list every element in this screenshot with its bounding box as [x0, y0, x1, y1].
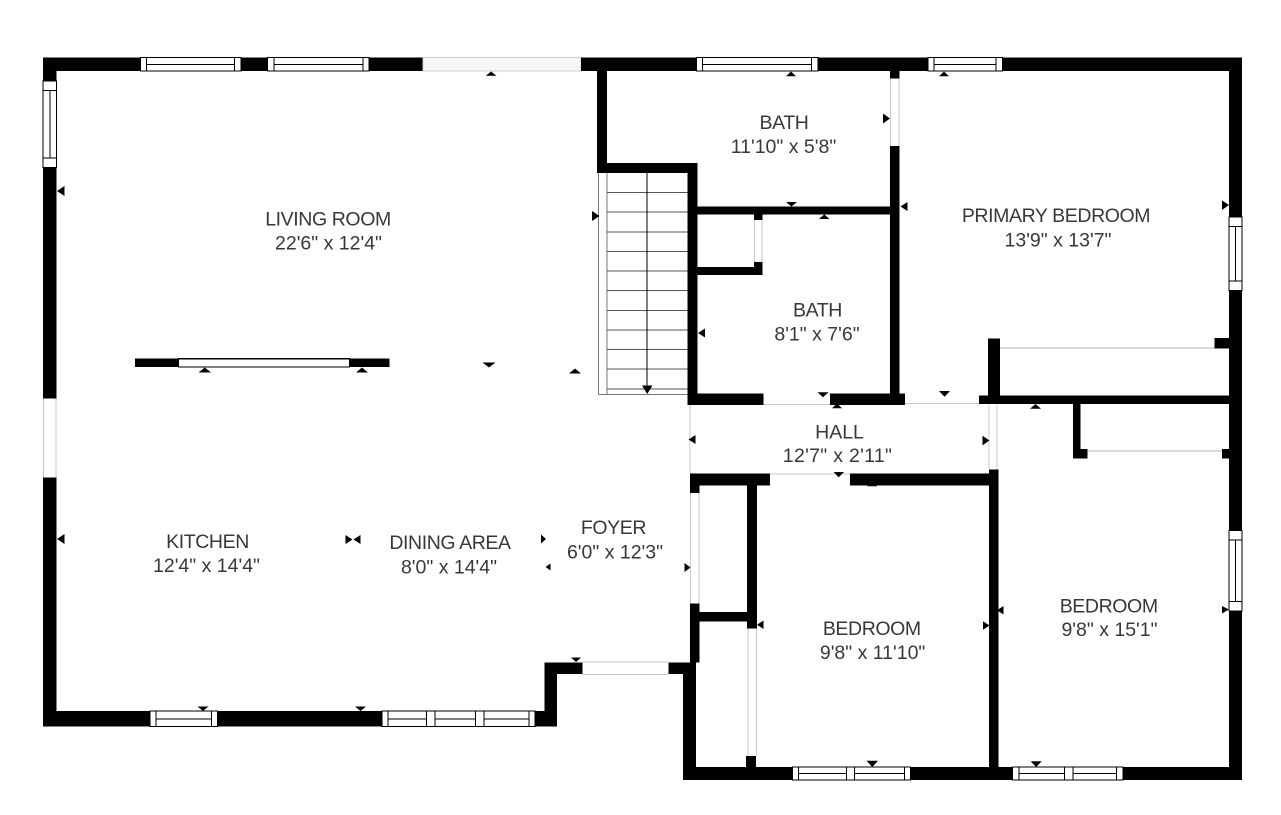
- svg-text:13'9" x 13'7": 13'9" x 13'7": [1005, 230, 1112, 252]
- svg-text:12'7" x 2'11": 12'7" x 2'11": [783, 445, 892, 467]
- svg-text:HALL: HALL: [815, 422, 864, 444]
- svg-text:BATH: BATH: [760, 112, 809, 134]
- svg-text:8'1" x 7'6": 8'1" x 7'6": [774, 324, 859, 346]
- svg-text:8'0" x 14'4": 8'0" x 14'4": [401, 557, 497, 579]
- svg-text:22'6" x 12'4": 22'6" x 12'4": [275, 233, 382, 255]
- svg-text:9'8" x 15'1": 9'8" x 15'1": [1061, 619, 1157, 641]
- svg-text:PRIMARY BEDROOM: PRIMARY BEDROOM: [962, 205, 1150, 227]
- svg-text:LIVING ROOM: LIVING ROOM: [265, 209, 391, 231]
- svg-text:FOYER: FOYER: [581, 517, 646, 539]
- svg-text:BEDROOM: BEDROOM: [823, 618, 921, 640]
- svg-text:KITCHEN: KITCHEN: [166, 531, 249, 553]
- svg-text:BATH: BATH: [793, 300, 842, 322]
- svg-text:12'4" x 14'4": 12'4" x 14'4": [153, 555, 260, 577]
- svg-text:BEDROOM: BEDROOM: [1060, 595, 1158, 617]
- svg-text:6'0" x 12'3": 6'0" x 12'3": [567, 542, 663, 564]
- svg-text:11'10" x 5'8": 11'10" x 5'8": [731, 136, 837, 158]
- svg-text:DINING AREA: DINING AREA: [389, 532, 511, 554]
- svg-text:9'8" x 11'10": 9'8" x 11'10": [820, 642, 926, 664]
